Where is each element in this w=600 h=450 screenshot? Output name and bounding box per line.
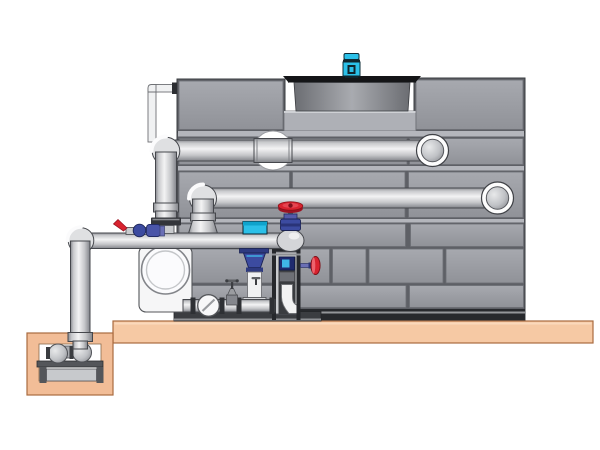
handwheel-hub [288,203,292,207]
tower-panel [411,224,524,247]
end-cap-sheen [289,233,300,240]
pipe-flange [220,298,225,315]
makeup-pipe-horizontal [156,85,173,93]
handwheel-sheen [312,257,316,273]
handle-tip [225,279,228,282]
riser-left [156,152,177,211]
fan-deck-band [284,111,416,131]
gate-valve-body [227,295,238,305]
fan-motor [343,54,360,79]
vent-stem [255,279,257,285]
motor-base [345,76,358,79]
tower-panel [410,286,524,308]
riser-left-lower [156,211,177,218]
pump-stand-top [37,361,103,367]
sump-pump-flange-left [46,347,50,359]
return-riser-sleeve [191,213,216,221]
fan-cowl [283,76,421,111]
tower-panel [416,80,523,130]
makeup-pipe-vertical [148,88,156,142]
return-pipe-run [203,188,496,208]
sump-pump-motor [49,344,68,363]
tower-panel [369,249,443,283]
concrete-slab [113,321,593,343]
stand-leg-left [40,367,47,383]
tower-seam-strip [178,131,524,137]
frame-post-right [297,250,301,321]
valve-drop-pipe [248,272,262,299]
return-pipe-elbow-head [486,187,508,209]
actuator-cap [243,222,267,226]
handle-tip [236,279,239,282]
makeup-flange [172,83,177,95]
frame-blue-box-window [282,260,290,268]
makeup-line [148,83,177,143]
valve-bottom-flange [246,268,263,273]
downcomer-coupling [68,333,93,342]
suction-pipe-run [80,233,282,249]
stand-leg-right [97,367,104,383]
suction-pipe-end-cap [277,230,304,252]
cooling-tower-diagram [0,0,600,450]
sump-pit [27,333,113,395]
check-valve-blue-body [147,225,161,237]
frame-gray-box [280,272,295,282]
tower-panel [446,249,524,283]
upper-pipe-run [166,140,430,161]
pipe-flange [191,298,196,315]
motor-window-inner [350,67,354,72]
upper-pipe-elbow-head [421,139,443,161]
tower-seam-strip [178,219,524,223]
ball-valve-red-lever [114,220,128,232]
return-riser-bell [189,221,218,234]
vent-handle [252,277,261,279]
pump-stand-shelf [47,369,97,381]
pump-suction-face [142,246,190,294]
suction-downcomer [71,241,91,333]
diagram-canvas [0,0,600,450]
tower-panel [333,249,367,283]
globe-valve-band [281,224,301,227]
valve-top-flange [240,249,269,254]
riser-flange-highlight [153,219,180,221]
pipe-flange [270,298,275,315]
tower-panel [179,81,283,130]
ball-valve-body [133,224,146,237]
motor-cap [344,54,359,60]
gate-valve-stem [231,282,233,290]
frame-rail-highlight [272,254,301,256]
slab-highlight [115,323,592,325]
downcomer-stub [73,341,88,349]
cowl-body [294,83,410,112]
cluster-flange [160,226,165,236]
tower-seam-strip [178,166,524,171]
upper-pipe-sleeve [254,139,292,163]
handwheel-stem [301,264,310,268]
